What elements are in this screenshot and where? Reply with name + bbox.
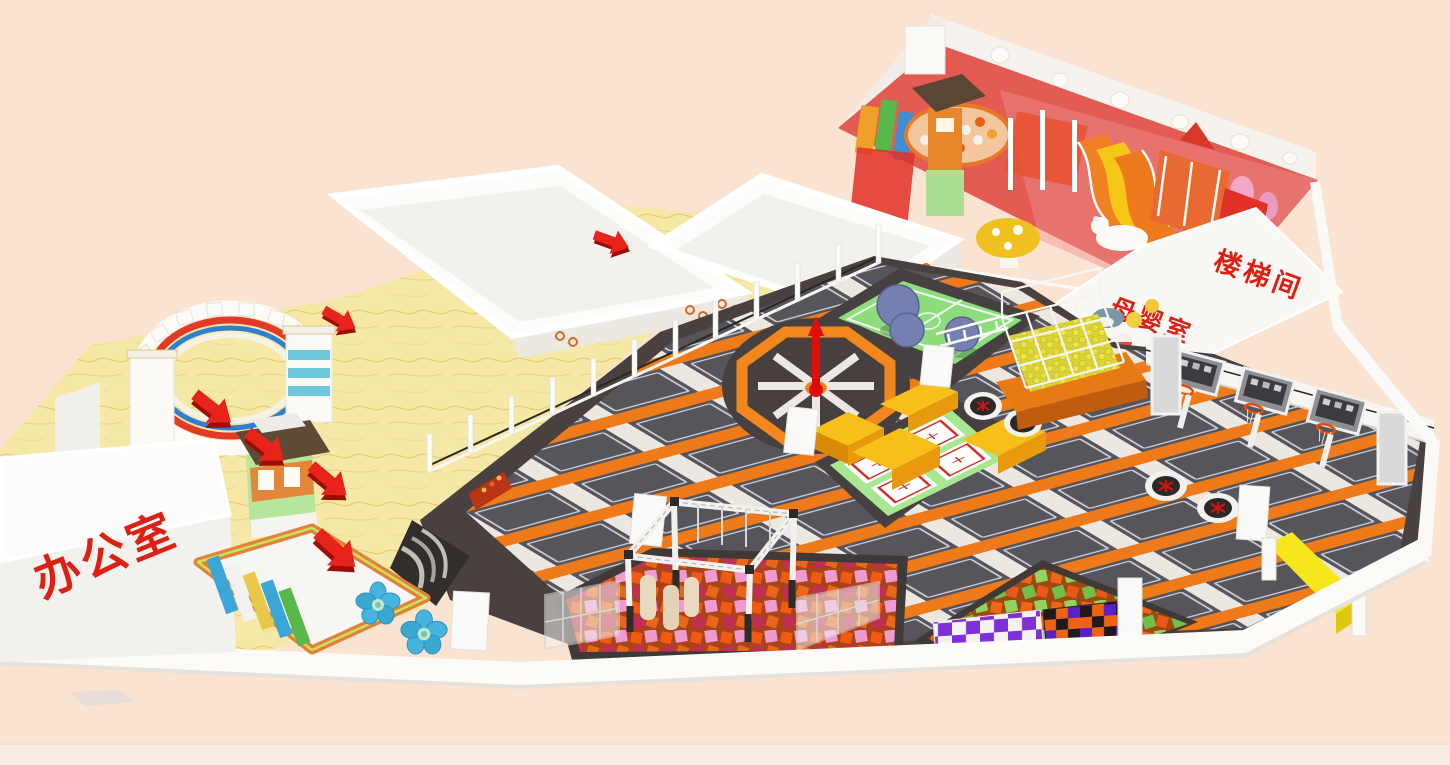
foam-cylinder xyxy=(684,577,699,617)
wrecking-ball xyxy=(890,313,924,347)
office: 办公室 xyxy=(0,440,236,662)
wall-pillar xyxy=(1378,412,1406,484)
foam-cylinder xyxy=(663,585,679,630)
render-canvas: 楼梯间 母婴室 xyxy=(0,0,1450,765)
wall-pillar xyxy=(1152,336,1180,414)
castle-tower-left xyxy=(127,350,177,448)
castle-tower-right xyxy=(283,326,335,422)
wall-pillar xyxy=(905,26,945,74)
baseboard-strip xyxy=(0,744,1450,765)
foam-cylinder xyxy=(640,575,656,620)
wrecking-ball xyxy=(945,317,979,351)
floorplan-render: 楼梯间 母婴室 xyxy=(0,0,1450,765)
